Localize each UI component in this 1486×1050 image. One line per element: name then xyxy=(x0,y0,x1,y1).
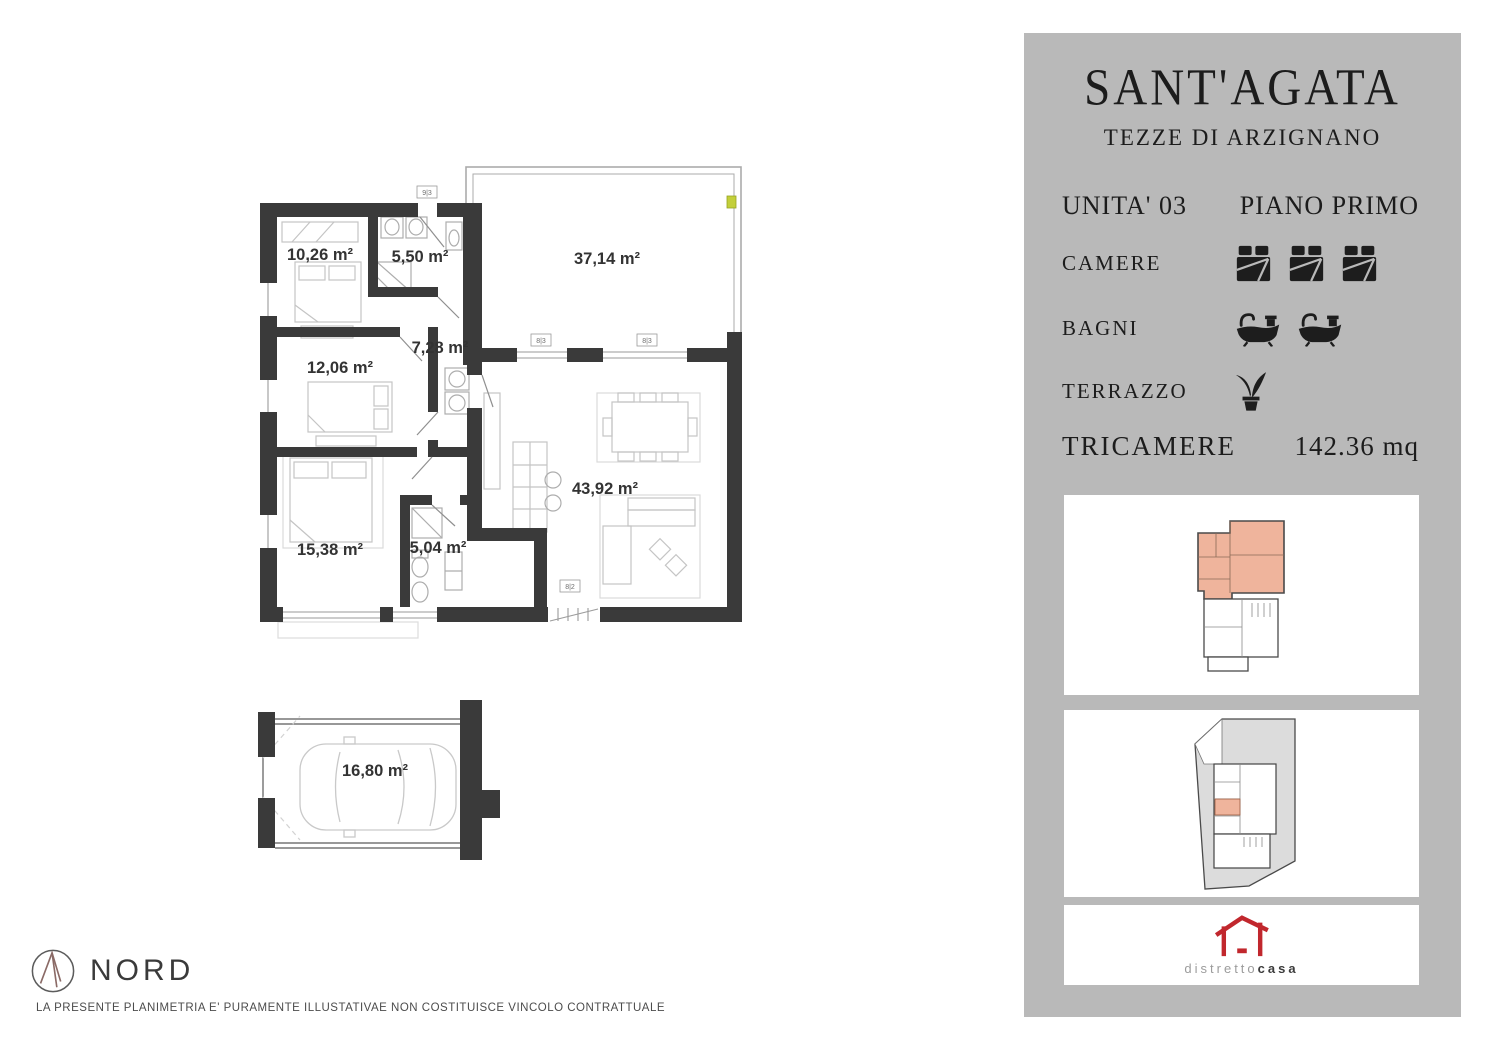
logo-part1: distretto xyxy=(1184,961,1257,976)
highlighted-unit xyxy=(1198,521,1284,599)
car xyxy=(300,737,456,837)
room-label-living: 43,92 m² xyxy=(572,480,639,498)
logo-text: distrettocasa xyxy=(1184,961,1298,976)
plan-walls xyxy=(258,203,742,860)
marker-label: 8|3 xyxy=(536,338,546,345)
north-label: NORD xyxy=(90,954,194,988)
marker-label: 8|3 xyxy=(642,338,652,345)
camere-icons xyxy=(1235,245,1378,282)
compass-icon xyxy=(30,948,76,994)
floor-label: PIANO PRIMO xyxy=(1240,191,1419,221)
bed-2 xyxy=(308,382,392,446)
logo-box: distrettocasa xyxy=(1064,905,1419,985)
page-subtitle: TEZZE DI ARZIGNANO xyxy=(1024,125,1461,151)
disclaimer-text: LA PRESENTE PLANIMETRIA E' PURAMENTE ILL… xyxy=(36,1002,665,1014)
room-label-bath2: 5,04 m² xyxy=(410,539,467,557)
type-label: TRICAMERE xyxy=(1062,431,1236,462)
terrace-marker xyxy=(727,196,736,208)
bagni-icons xyxy=(1235,309,1343,347)
site-plan xyxy=(1064,710,1419,897)
marker-label: 9|3 xyxy=(422,190,432,197)
room-label-bedroom3: 15,38 m² xyxy=(297,541,364,559)
feature-row-camere: CAMERE xyxy=(1062,240,1419,286)
marker-label: 8|2 xyxy=(565,584,575,591)
bed-1 xyxy=(282,222,361,338)
house-logo-icon xyxy=(1213,914,1271,958)
unit-locator-plan xyxy=(1064,495,1419,695)
plant-icon xyxy=(1235,371,1267,411)
feature-row-bagni: BAGNI xyxy=(1062,305,1419,351)
bed-icon xyxy=(1288,245,1325,282)
type-area-row: TRICAMERE 142.36 mq xyxy=(1062,431,1419,462)
brochure-page: 9|3 8|3 8|3 8|2 10,26 m² 5,50 m² 37,14 m… xyxy=(0,0,1486,1050)
room-label-hall: 7,28 m² xyxy=(412,339,469,357)
site-plan-box xyxy=(1064,710,1419,897)
room-label-bedroom1: 10,26 m² xyxy=(287,246,354,264)
room-label-garage: 16,80 m² xyxy=(342,762,409,780)
bed-3 xyxy=(283,452,383,548)
hall-appliances xyxy=(445,368,469,414)
highlighted-garage xyxy=(1215,799,1240,815)
terrazzo-label: TERRAZZO xyxy=(1062,379,1235,404)
bathtub-icon xyxy=(1235,309,1281,347)
bagni-label: BAGNI xyxy=(1062,316,1235,341)
room-label-bath1: 5,50 m² xyxy=(392,248,449,266)
feature-row-terrazzo: TERRAZZO xyxy=(1062,368,1419,414)
bathtub-icon xyxy=(1297,309,1343,347)
bed-icon xyxy=(1341,245,1378,282)
logo-part2: casa xyxy=(1258,961,1299,976)
unit-floor-row: UNITA' 03 PIANO PRIMO xyxy=(1062,191,1419,221)
unit-locator-box xyxy=(1064,495,1419,695)
room-label-terrace: 37,14 m² xyxy=(574,250,641,268)
room-label-bedroom2: 12,06 m² xyxy=(307,359,374,377)
camere-label: CAMERE xyxy=(1062,251,1235,276)
bed-icon xyxy=(1235,245,1272,282)
garage-outline xyxy=(263,719,460,848)
info-panel: SANT'AGATA TEZZE DI ARZIGNANO UNITA' 03 … xyxy=(1024,33,1461,1017)
page-title: SANT'AGATA xyxy=(1024,58,1461,117)
terrazzo-icons xyxy=(1235,371,1267,411)
unit-label: UNITA' 03 xyxy=(1062,191,1187,221)
total-area-value: 142.36 mq xyxy=(1294,431,1419,462)
